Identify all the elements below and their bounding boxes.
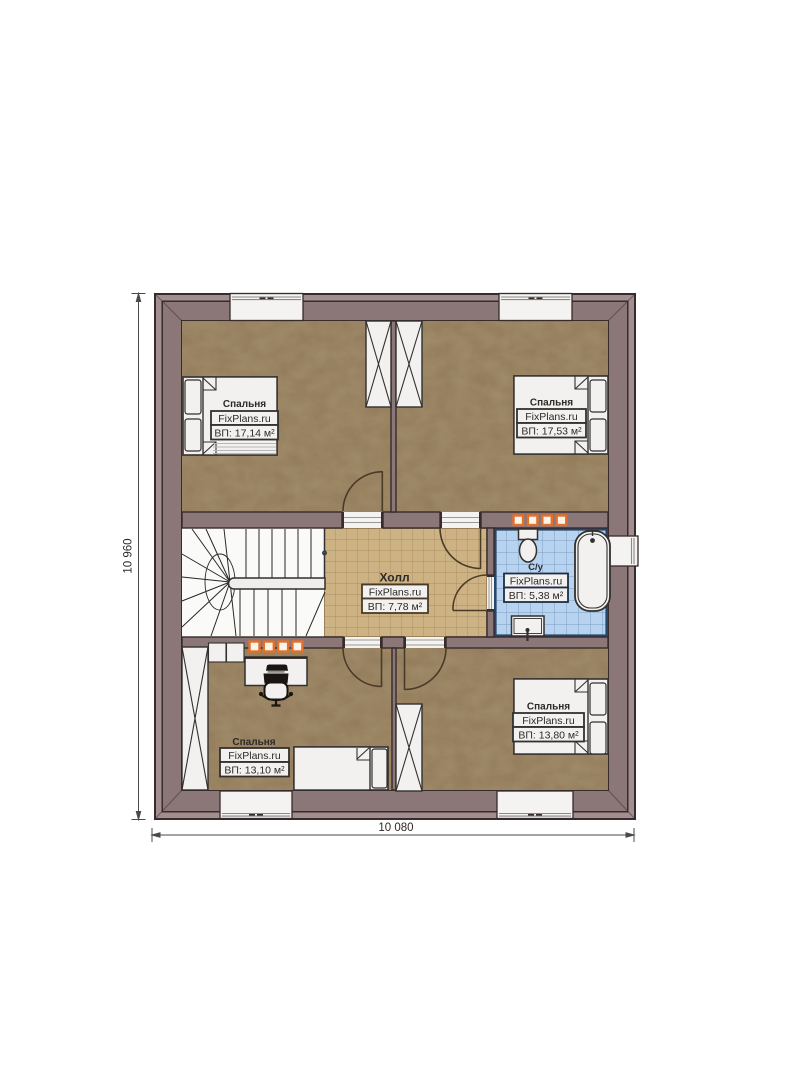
svg-text:FixPlans.ru: FixPlans.ru	[522, 715, 575, 727]
svg-text:FixPlans.ru: FixPlans.ru	[369, 587, 422, 599]
svg-text:ВП: 13,10 м²: ВП: 13,10 м²	[224, 765, 285, 777]
svg-text:ВП: 7,78 м²: ВП: 7,78 м²	[368, 601, 423, 613]
svg-text:С/у: С/у	[528, 562, 544, 573]
svg-text:Холл: Холл	[379, 571, 409, 585]
svg-text:ВП: 17,53 м²: ВП: 17,53 м²	[521, 426, 582, 438]
svg-text:FixPlans.ru: FixPlans.ru	[218, 413, 271, 425]
svg-text:10 960: 10 960	[123, 538, 135, 573]
svg-text:Спальня: Спальня	[530, 398, 573, 409]
svg-text:Спальня: Спальня	[232, 737, 275, 748]
svg-text:FixPlans.ru: FixPlans.ru	[525, 411, 578, 423]
svg-text:FixPlans.ru: FixPlans.ru	[228, 750, 281, 762]
svg-text:10 080: 10 080	[378, 822, 413, 834]
svg-text:ВП: 5,38 м²: ВП: 5,38 м²	[509, 590, 564, 602]
svg-text:FixPlans.ru: FixPlans.ru	[510, 576, 563, 588]
svg-text:ВП: 13,80 м²: ВП: 13,80 м²	[518, 730, 579, 742]
svg-text:ВП: 17,14 м²: ВП: 17,14 м²	[214, 428, 275, 440]
svg-text:Спальня: Спальня	[527, 702, 570, 713]
svg-text:Спальня: Спальня	[223, 399, 266, 410]
